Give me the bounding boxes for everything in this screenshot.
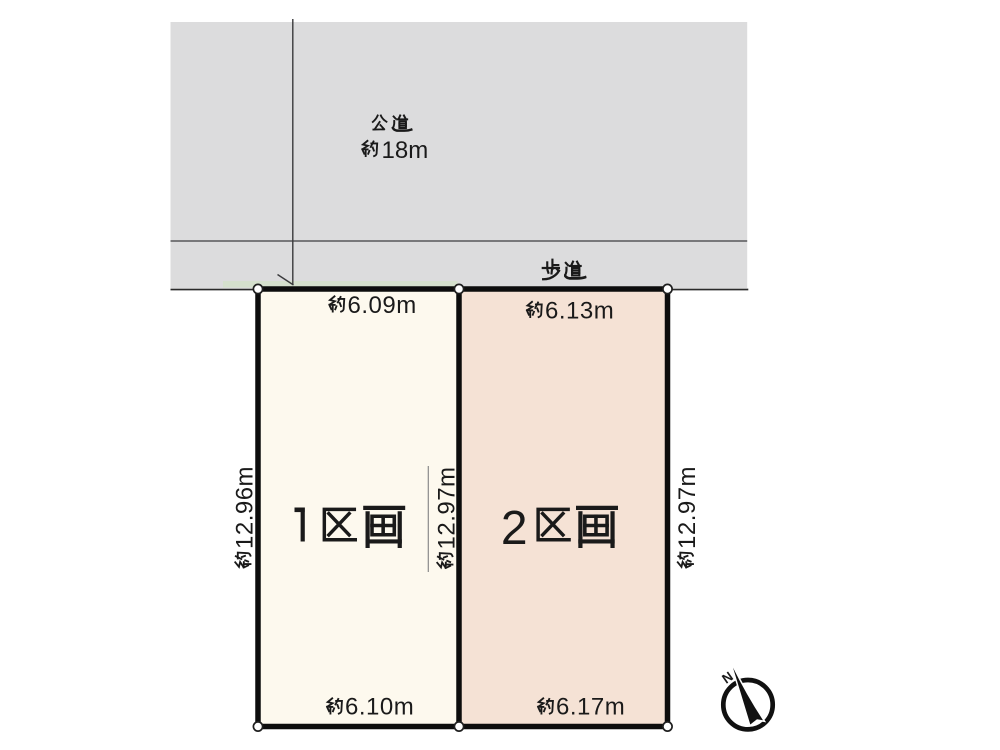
svg-text:6.17m: 6.17m [556,694,625,721]
svg-text:12.97m: 12.97m [434,466,461,549]
svg-text:6.10m: 6.10m [345,694,414,721]
svg-text:2: 2 [501,502,528,555]
svg-text:12.97m: 12.97m [674,466,701,549]
svg-text:12.96m: 12.96m [232,466,259,549]
svg-text:18m: 18m [382,137,429,164]
svg-text:6.13m: 6.13m [545,298,614,325]
svg-text:6.09m: 6.09m [348,292,417,319]
